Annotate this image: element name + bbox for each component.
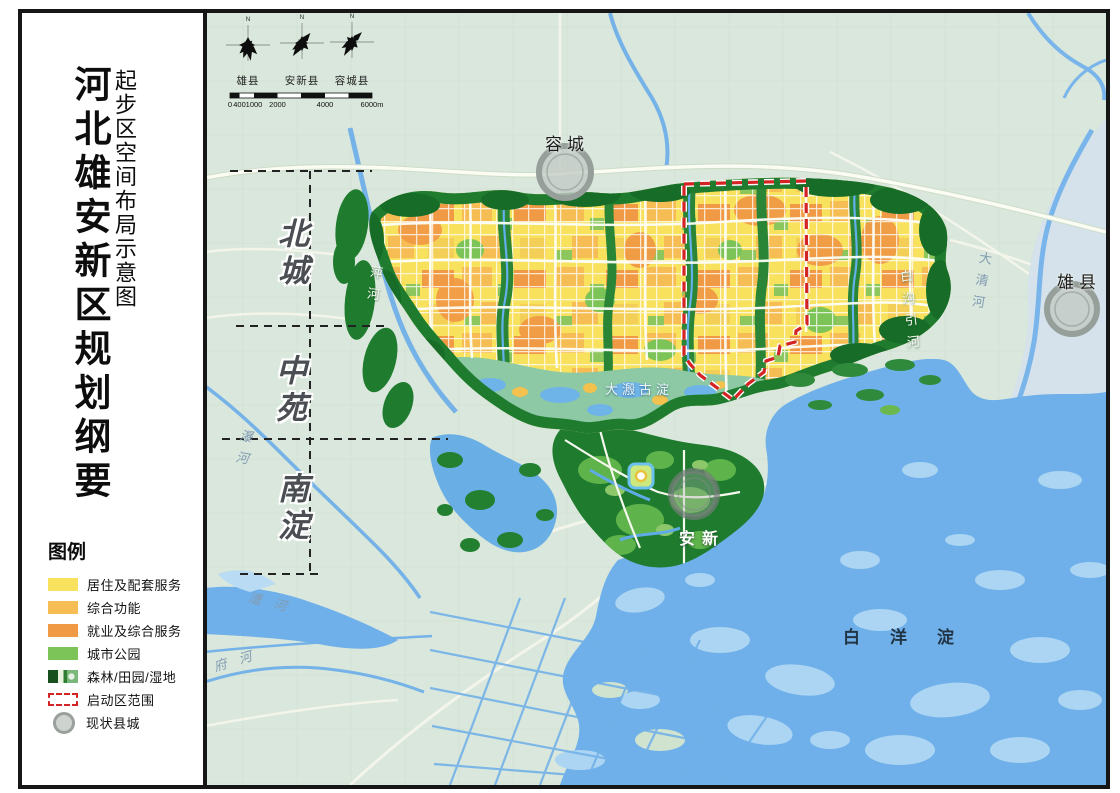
park-swatch xyxy=(48,647,78,660)
legend-item-startup-area: 启动区范围 xyxy=(48,688,203,711)
map-graphics: N N xyxy=(207,13,1106,785)
svg-text:1000: 1000 xyxy=(246,100,263,109)
north-label: N xyxy=(350,13,355,20)
north-label: N xyxy=(300,14,305,21)
legend: 图例 居住及配套服务 综合功能 就业及综合服务 城市公园 森林/田园/湿地 xyxy=(48,537,203,734)
residential-swatch xyxy=(48,578,78,591)
legend-item-forest: 森林/田园/湿地 xyxy=(48,665,203,688)
svg-text:4000: 4000 xyxy=(317,100,334,109)
legend-item-residential: 居住及配套服务 xyxy=(48,573,203,596)
forest-swatch xyxy=(48,670,78,683)
compass-label-anxinxian: 安新县 xyxy=(280,73,324,88)
legend-item-employment: 就业及综合服务 xyxy=(48,619,203,642)
legend-item-county-town: 现状县城 xyxy=(48,711,203,734)
svg-text:2000: 2000 xyxy=(269,100,286,109)
civic-landmark-icon xyxy=(629,464,653,488)
legend-item-mixed: 综合功能 xyxy=(48,596,203,619)
svg-text:0: 0 xyxy=(228,100,232,109)
legend-title: 图例 xyxy=(48,537,203,564)
rongcheng-marker xyxy=(539,146,591,198)
north-label: N xyxy=(246,16,251,23)
svg-text:6000m: 6000m xyxy=(361,100,384,109)
map-canvas: N N xyxy=(203,13,1106,785)
anxin-marker xyxy=(671,471,717,517)
legend-item-park: 城市公园 xyxy=(48,642,203,665)
compass-label-rongchengxian: 容城县 xyxy=(330,73,374,88)
county-town-swatch xyxy=(53,712,75,734)
sidebar: 河北雄安新区规划纲要 起步区空间布局示意图 图例 居住及配套服务 综合功能 就业… xyxy=(22,13,203,785)
svg-text:400: 400 xyxy=(233,100,246,109)
startup-area-swatch xyxy=(48,693,78,706)
employment-swatch xyxy=(48,624,78,637)
poster-subtitle: 起步区空间布局示意图 xyxy=(108,69,140,309)
poster-frame: 河北雄安新区规划纲要 起步区空间布局示意图 图例 居住及配套服务 综合功能 就业… xyxy=(18,9,1110,789)
xiongxian-marker xyxy=(1047,284,1097,334)
mixed-use-swatch xyxy=(48,601,78,614)
compass-label-xiongxian: 雄县 xyxy=(226,73,270,88)
planning-poster: 河北雄安新区规划纲要 起步区空间布局示意图 图例 居住及配套服务 综合功能 就业… xyxy=(0,0,1120,793)
